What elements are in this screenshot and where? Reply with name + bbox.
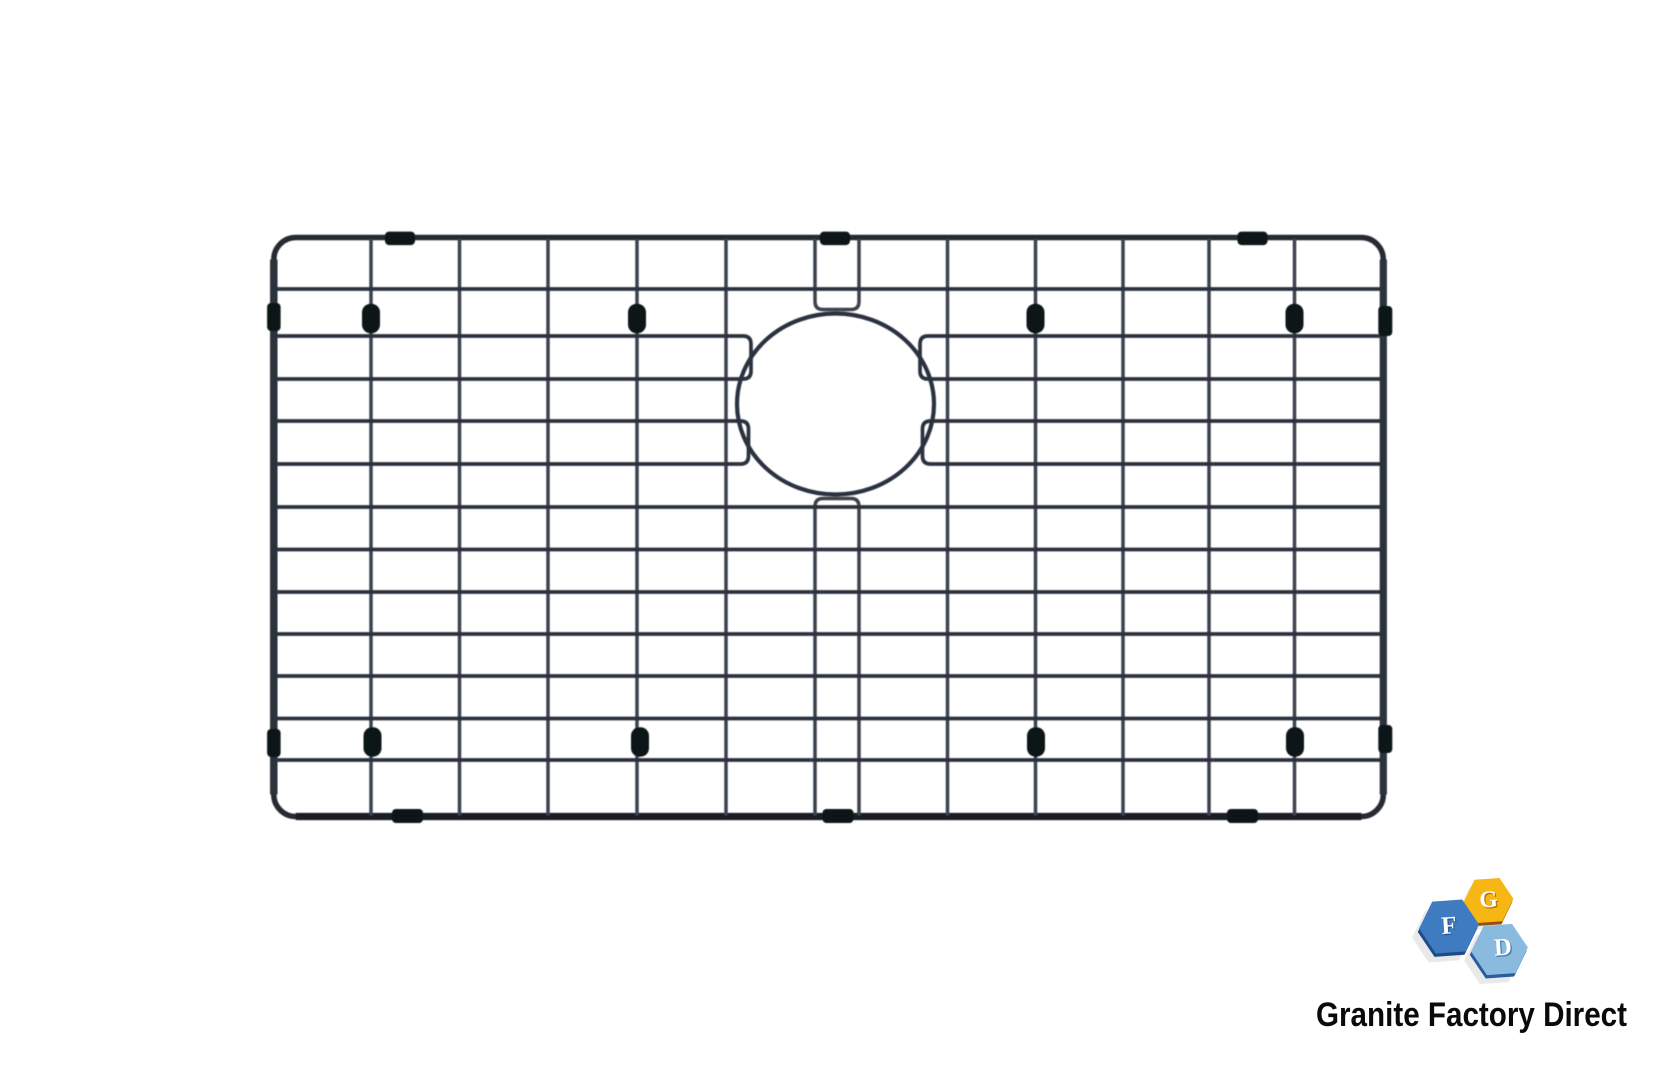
svg-text:F: F — [1440, 912, 1457, 940]
svg-text:G: G — [1478, 886, 1498, 913]
svg-text:Granite Factory Direct: Granite Factory Direct — [1316, 996, 1627, 1034]
svg-text:D: D — [1493, 933, 1513, 961]
